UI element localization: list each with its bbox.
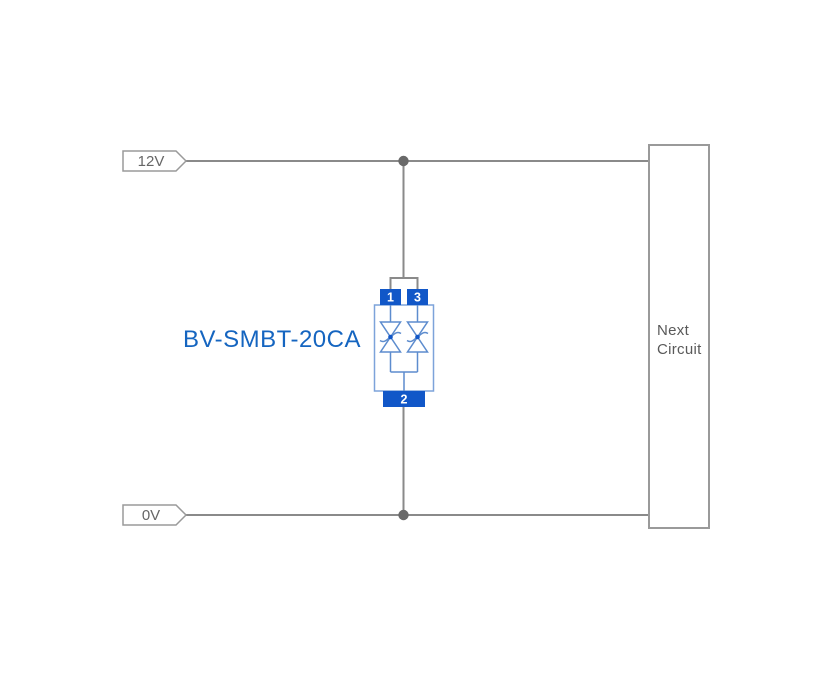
pin-number-1: 1: [387, 291, 394, 305]
net-tag-0v-label: 0V: [142, 507, 160, 524]
pin-number-3: 3: [414, 291, 421, 305]
pin-number-2: 2: [401, 393, 408, 407]
schematic-svg: 12V 0V Next Circuit: [0, 0, 832, 675]
next-circuit-label-line1: Next: [657, 322, 690, 339]
junction-dot-bottom: [398, 510, 408, 520]
pin-split-wire: [391, 278, 418, 289]
net-tag-12v-label: 12V: [138, 153, 165, 170]
circuit-diagram: 12V 0V Next Circuit: [0, 0, 832, 675]
next-circuit-label-line2: Circuit: [657, 341, 702, 358]
component-part-number: BV-SMBT-20CA: [183, 326, 361, 353]
junction-dot-top: [398, 156, 408, 166]
tvs-component: 1 3 2: [375, 289, 434, 407]
